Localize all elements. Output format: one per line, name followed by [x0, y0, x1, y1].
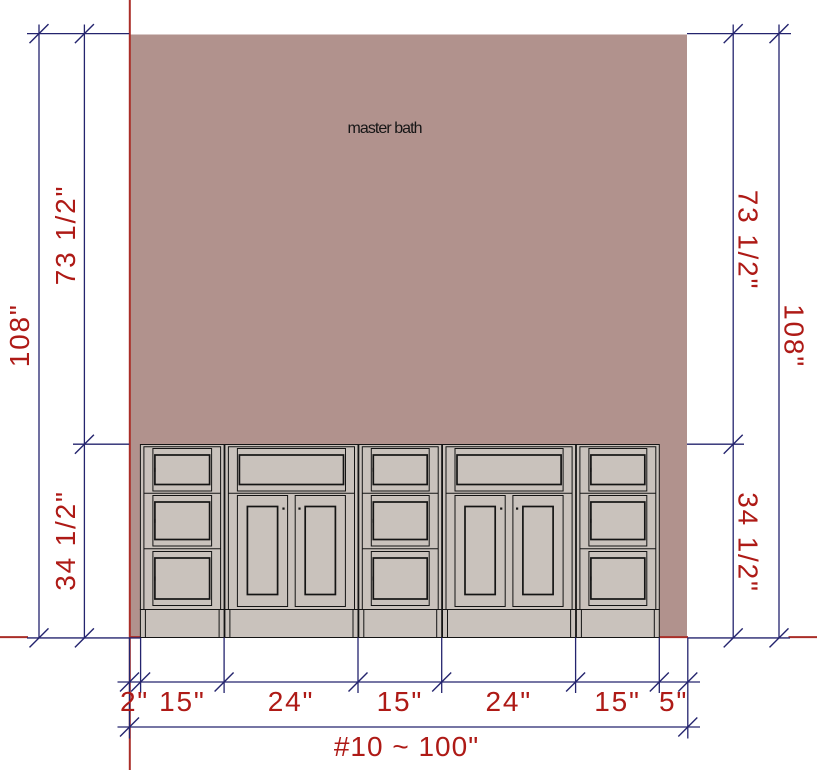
- svg-text:34 1/2": 34 1/2": [50, 490, 81, 590]
- svg-text:108": 108": [4, 303, 35, 367]
- svg-text:2": 2": [120, 686, 149, 717]
- svg-text:15": 15": [377, 686, 423, 717]
- svg-text:15": 15": [594, 686, 640, 717]
- svg-text:24": 24": [485, 686, 531, 717]
- svg-text:master bath: master bath: [348, 120, 422, 137]
- svg-text:73 1/2": 73 1/2": [50, 185, 81, 285]
- svg-text:73 1/2": 73 1/2": [733, 190, 764, 290]
- svg-text:5": 5": [659, 686, 688, 717]
- svg-text:34 1/2": 34 1/2": [733, 492, 764, 592]
- svg-text:15": 15": [159, 686, 205, 717]
- svg-text:24": 24": [268, 686, 314, 717]
- svg-text:108": 108": [779, 304, 810, 368]
- svg-text:#10 ~ 100": #10 ~ 100": [334, 731, 479, 762]
